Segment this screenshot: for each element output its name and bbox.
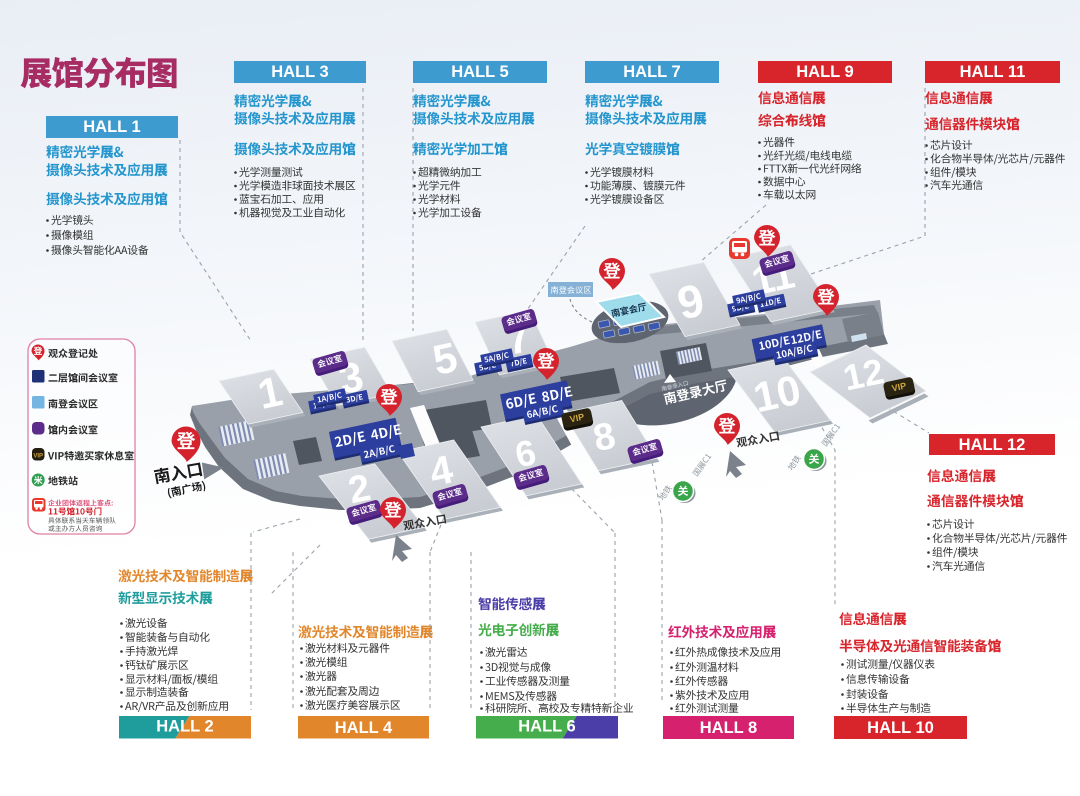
- svg-text:HALL 2: HALL 2: [156, 718, 213, 736]
- svg-text:HALL 5: HALL 5: [451, 63, 508, 81]
- svg-text:HALL 4: HALL 4: [335, 719, 393, 737]
- svg-text:10: 10: [749, 366, 804, 422]
- svg-text:HALL 7: HALL 7: [623, 63, 680, 81]
- svg-text:VIP: VIP: [33, 454, 43, 460]
- svg-text:HALL 6: HALL 6: [518, 718, 575, 736]
- svg-text:HALL 11: HALL 11: [960, 63, 1026, 81]
- svg-text:12: 12: [840, 350, 888, 398]
- svg-text:HALL 9: HALL 9: [796, 63, 853, 81]
- svg-text:HALL 10: HALL 10: [867, 719, 934, 737]
- svg-text:HALL 12: HALL 12: [959, 436, 1026, 454]
- svg-text:HALL 3: HALL 3: [271, 63, 328, 81]
- svg-text:HALL 1: HALL 1: [83, 118, 140, 136]
- svg-text:HALL 8: HALL 8: [700, 719, 757, 737]
